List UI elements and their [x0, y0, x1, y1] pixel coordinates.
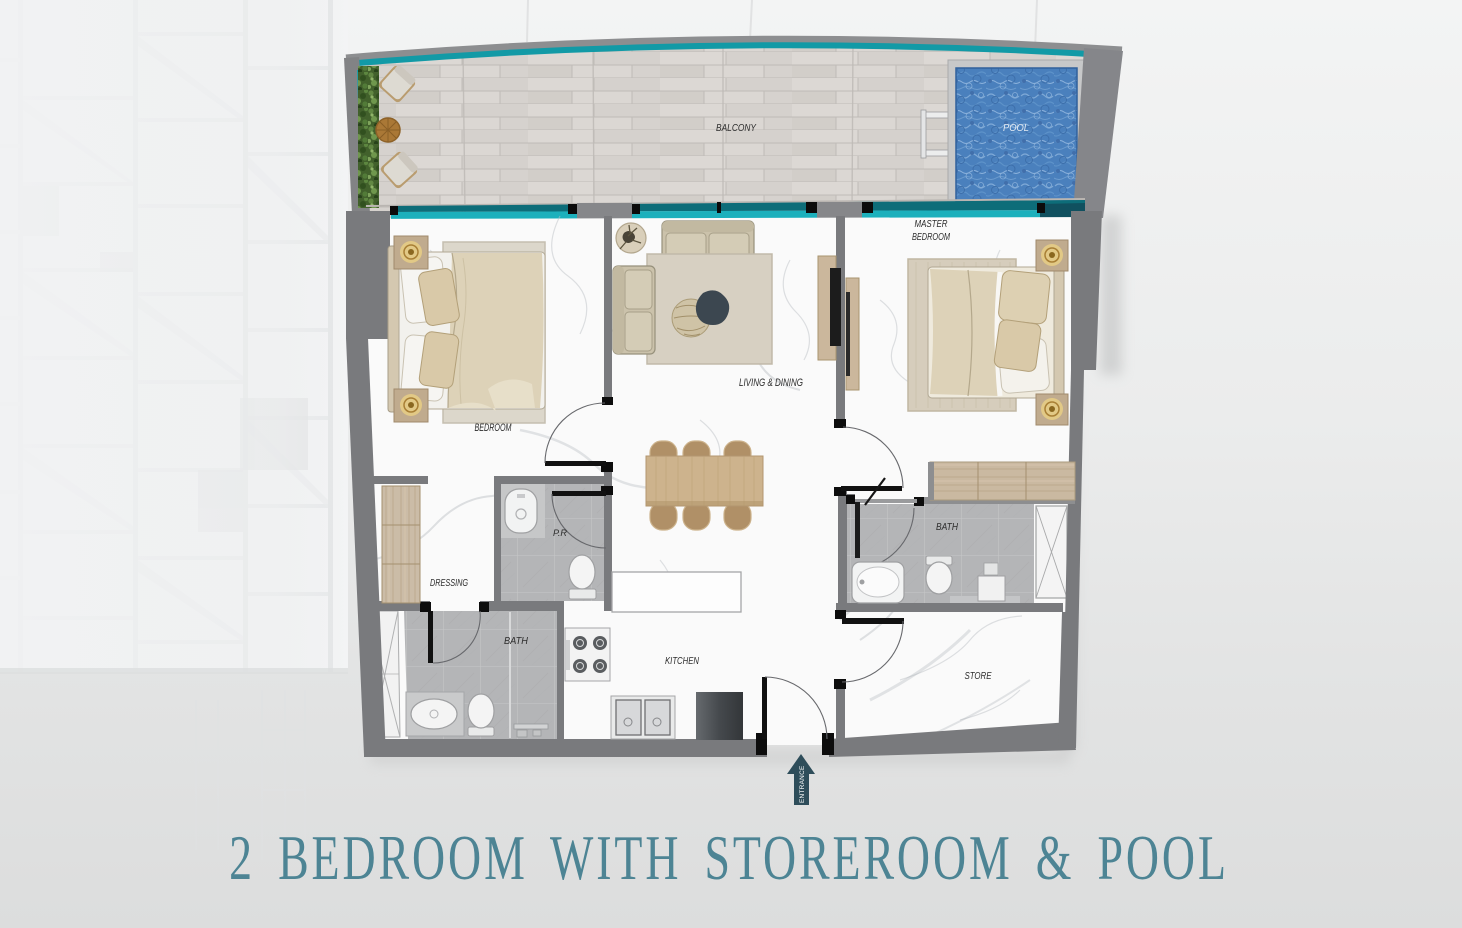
svg-text:ENTRANCE: ENTRANCE	[799, 765, 806, 803]
svg-text:P.R: P.R	[553, 528, 568, 538]
svg-text:2 BEDROOM WITH STOREROOM & POO: 2 BEDROOM WITH STOREROOM & POOL	[229, 823, 1229, 893]
svg-text:KITCHEN: KITCHEN	[665, 655, 699, 667]
svg-text:POOL: POOL	[1003, 123, 1029, 134]
svg-text:BALCONY: BALCONY	[716, 122, 757, 134]
svg-text:BATH: BATH	[936, 521, 958, 533]
svg-text:LIVING & DINING: LIVING & DINING	[739, 377, 803, 389]
svg-text:DRESSING: DRESSING	[430, 578, 468, 589]
svg-text:BEDROOM: BEDROOM	[912, 231, 950, 243]
svg-text:STORE: STORE	[965, 670, 993, 682]
svg-text:MASTER: MASTER	[915, 218, 948, 230]
svg-text:BEDROOM: BEDROOM	[475, 422, 513, 434]
svg-text:BATH: BATH	[504, 635, 528, 647]
